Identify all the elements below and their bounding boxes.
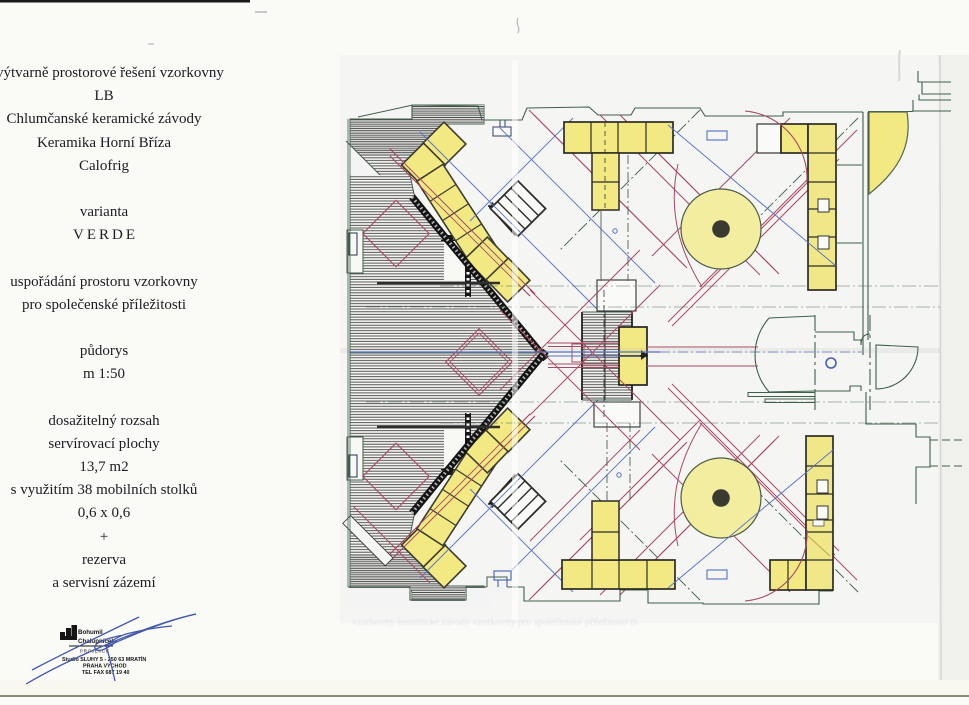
svg-text:Bohumil: Bohumil [78,629,103,636]
svg-text:TEL FAX 687 19 40: TEL FAX 687 19 40 [82,670,130,676]
svg-text:vzorkovny keramické závody vzo: vzorkovny keramické závody vzorkovny pro… [352,617,638,628]
svg-text:PRAHA VÝCHOD: PRAHA VÝCHOD [83,663,127,670]
